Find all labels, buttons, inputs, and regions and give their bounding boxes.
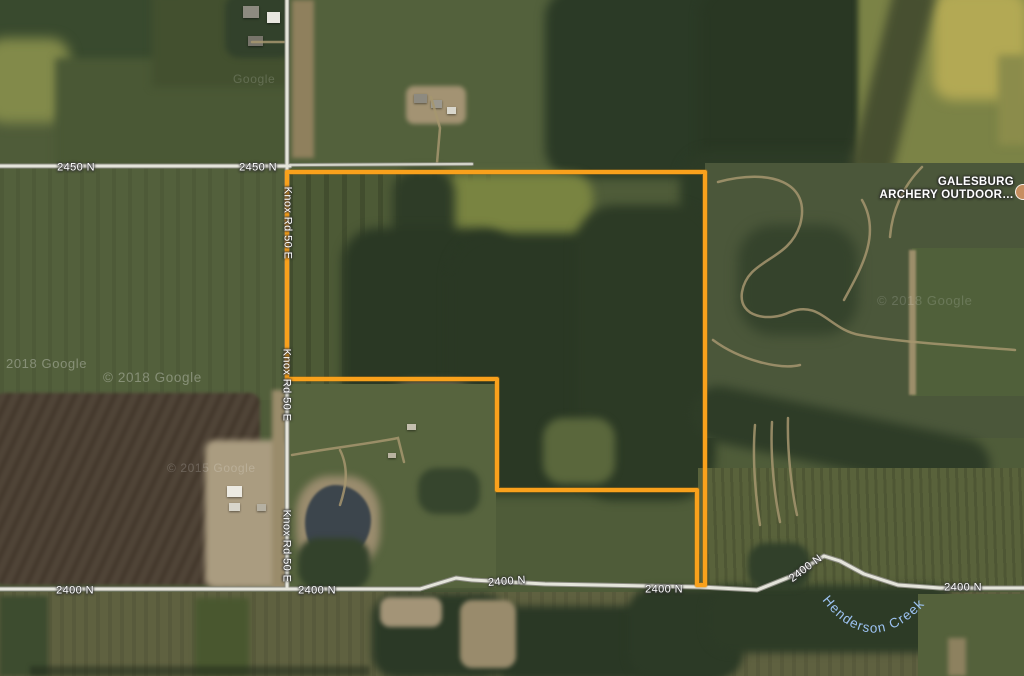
building: [407, 424, 416, 430]
poi-marker-icon[interactable]: [1015, 184, 1024, 200]
road-label-2400n: 2400 N: [56, 586, 94, 597]
field-patch: [30, 666, 370, 676]
building: [414, 94, 427, 103]
google-watermark: Google: [233, 72, 275, 86]
road-label-2450n: 2450 N: [239, 163, 277, 174]
poi-label-galesburg-archery[interactable]: GALESBURG ARCHERY OUTDOOR…: [828, 176, 1014, 201]
building: [257, 504, 266, 511]
road-label-2400n: 2400 N: [298, 586, 336, 597]
satellite-map-canvas[interactable]: Henderson Creek 2450 N 2450 N Knox Rd 50…: [0, 0, 1024, 676]
road-label-2400n: 2400 N: [944, 583, 982, 594]
building: [447, 107, 456, 114]
woods-patch: [225, 0, 295, 58]
poi-label-line2: ARCHERY OUTDOOR…: [828, 189, 1014, 202]
road-label-2400n: 2400 N: [645, 585, 683, 596]
dirt-strip: [948, 638, 966, 676]
building: [248, 36, 263, 46]
field-patch: [912, 248, 1024, 396]
google-watermark: © 2015 Google: [167, 461, 256, 475]
building: [431, 100, 442, 108]
clearing-patch: [543, 418, 615, 484]
road-label-2450n: 2450 N: [57, 163, 95, 174]
field-patch: [290, 0, 575, 170]
poi-label-line1: GALESBURG: [828, 176, 1014, 189]
field-patch: [698, 468, 1024, 590]
woods-patch: [418, 468, 480, 514]
building: [229, 503, 240, 511]
building: [388, 453, 396, 458]
clearing-patch: [460, 600, 516, 668]
field-patch: [0, 596, 48, 676]
building: [227, 486, 242, 497]
woods-patch: [298, 538, 370, 590]
building: [243, 6, 259, 18]
road-label-knox: Knox Rd 50 E: [281, 510, 292, 583]
dirt-strip: [909, 250, 916, 395]
google-watermark: © 2018 Google: [877, 293, 972, 308]
field-patch: [998, 55, 1024, 145]
field-patch: [918, 594, 1024, 676]
dirt-strip: [292, 0, 314, 158]
clearing-patch: [380, 597, 442, 627]
road-label-knox: Knox Rd 50 E: [282, 187, 293, 260]
road-label-knox: Knox Rd 50 E: [281, 349, 292, 422]
google-watermark: 2018 Google: [6, 356, 87, 371]
field-patch: [195, 598, 249, 676]
building: [267, 12, 280, 23]
google-watermark: © 2018 Google: [103, 370, 202, 385]
woods-patch: [738, 225, 858, 335]
